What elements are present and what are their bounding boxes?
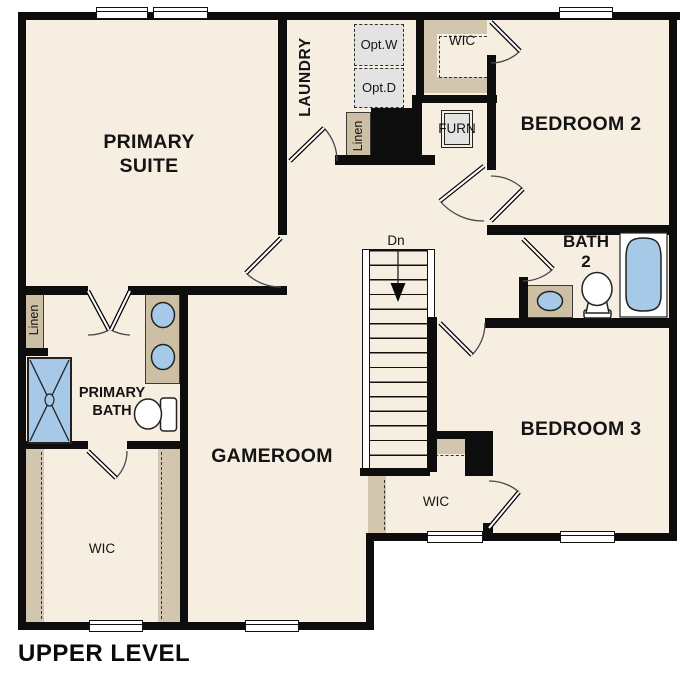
wall-outer-bottom-left [18, 622, 374, 630]
wall-primary-bath-bottom-b [127, 441, 180, 449]
window [560, 531, 615, 543]
window [559, 7, 613, 19]
primary-suite-label: PRIMARY SUITE [103, 131, 194, 179]
bath-linen-label: Linen [27, 305, 41, 336]
wall-outer-right [669, 12, 677, 541]
stair-treads [370, 249, 427, 469]
window [96, 7, 148, 19]
bath2-sink-counter [527, 285, 573, 318]
bedroom2-wic-label: WIC [449, 33, 475, 48]
wall-laundry-wic [416, 20, 424, 98]
primary-bath-label: PRIMARY BATH [79, 384, 145, 420]
window [153, 7, 208, 19]
furnace-label: FURN [438, 121, 476, 136]
laundry-label: LAUNDRY [297, 37, 315, 116]
floor-plan: Opt.W Opt.D [0, 0, 687, 687]
wall-bath-gameroom [180, 286, 188, 622]
bedroom2-wic-shelf-bottom [421, 77, 487, 93]
stair-rail-right [427, 249, 435, 319]
primary-wic-rod-left [41, 452, 42, 619]
wall-stairs-right [427, 317, 437, 472]
wall-outer-bottom-right [366, 533, 677, 541]
wall-outer-left [18, 12, 26, 630]
wall-outer-step [366, 533, 374, 630]
stair-rail-left [362, 249, 370, 472]
wall-linen-bottom [18, 348, 48, 356]
gameroom-label: GAMEROOM [211, 445, 333, 469]
primary-bath-vanity [145, 292, 180, 384]
wall-primary-bath-bottom-a [26, 441, 88, 449]
window [245, 620, 299, 632]
wall-bath2-cap [519, 277, 528, 323]
optional-washer-label: Opt.W [361, 38, 398, 52]
wall-primary-suite-bottom-b [128, 286, 287, 295]
wall-furnace-left [412, 95, 422, 165]
wall-furnace-top [412, 95, 497, 103]
floor-lower-left-area [26, 533, 366, 622]
optional-dryer: Opt.D [354, 68, 404, 108]
plan-title: UPPER LEVEL [18, 640, 190, 668]
wall-primary-suite-right [278, 20, 287, 235]
wall-bedroom3-wic-doorcap [483, 523, 493, 533]
floor-upper-area [26, 20, 669, 533]
wall-bedroom3-wic-block [465, 431, 493, 476]
wall-stairs-bottom [360, 468, 430, 476]
bedroom3-wic-label: WIC [423, 494, 449, 509]
window [427, 531, 483, 543]
bedroom2-label: BEDROOM 2 [521, 113, 642, 137]
wall-bedroom2-left [487, 55, 496, 170]
optional-washer: Opt.W [354, 24, 404, 66]
optional-dryer-label: Opt.D [362, 81, 396, 95]
wall-bedroom3-top [485, 318, 677, 328]
window [89, 620, 143, 632]
stairs-down-label: Dn [387, 233, 404, 248]
bedroom3-label: BEDROOM 3 [521, 418, 642, 442]
wall-primary-suite-bottom-a [26, 286, 88, 295]
bath2-label: BATH 2 [563, 232, 609, 272]
primary-wic-label: WIC [89, 541, 115, 556]
primary-wic-rod-right [161, 452, 162, 619]
bedroom3-wic-rod-left [384, 480, 385, 530]
hall-linen-label: Linen [351, 121, 365, 152]
